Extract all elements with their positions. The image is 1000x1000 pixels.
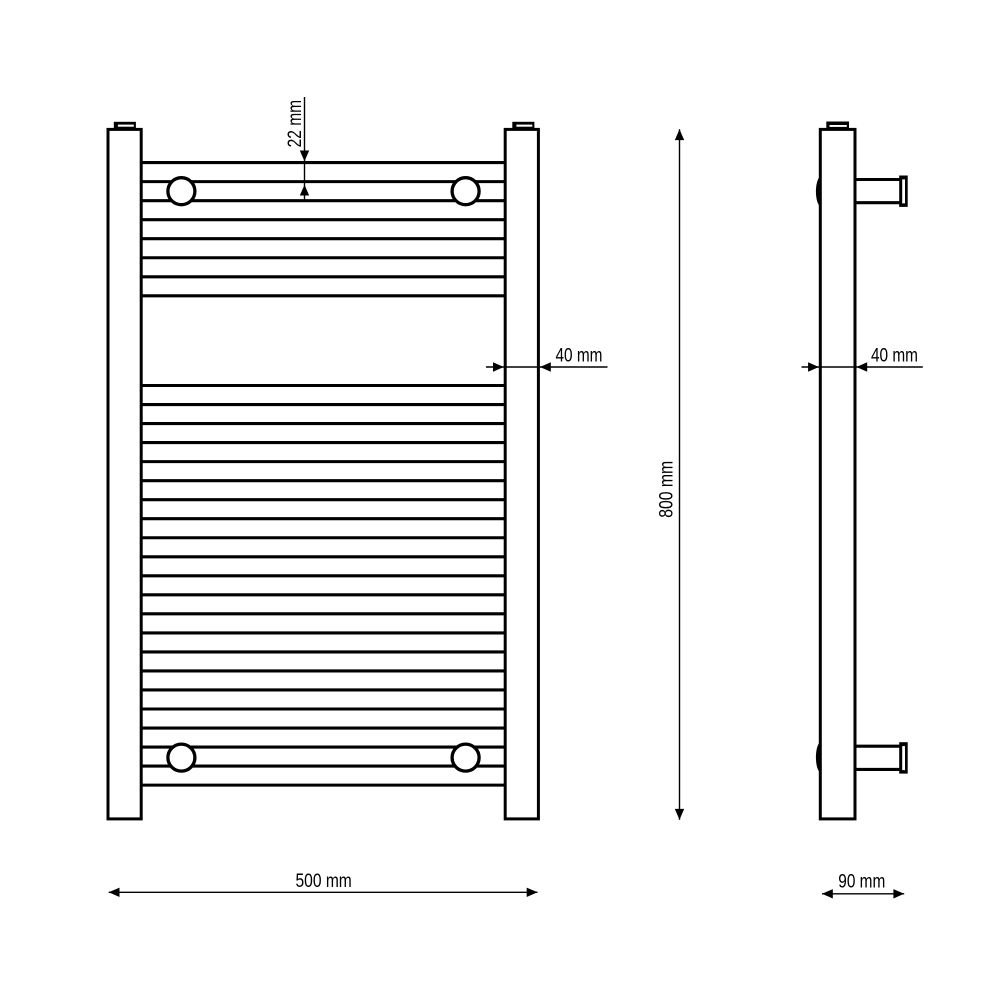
svg-text:90 mm: 90 mm: [838, 870, 885, 892]
svg-text:40 mm: 40 mm: [556, 345, 603, 367]
svg-text:800 mm: 800 mm: [655, 461, 677, 518]
svg-text:500 mm: 500 mm: [296, 870, 352, 892]
svg-text:40 mm: 40 mm: [871, 345, 918, 367]
svg-text:22 mm: 22 mm: [284, 100, 306, 148]
